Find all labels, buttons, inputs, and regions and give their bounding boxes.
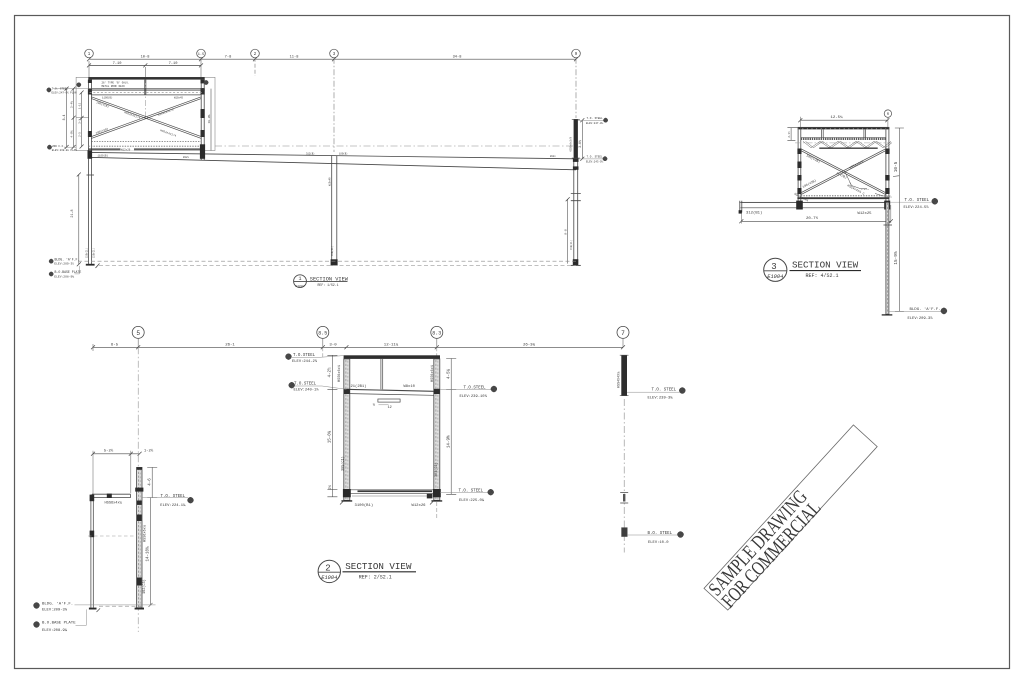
svg-text:14-9⅝: 14-9⅝ — [447, 435, 451, 448]
svg-text:2ND F.F.: 2ND F.F. — [52, 145, 65, 148]
svg-text:ELEV:225-0¾: ELEV:225-0¾ — [459, 498, 485, 503]
svg-text:HSS6x6x¼: HSS6x6x¼ — [143, 524, 148, 542]
svg-text:11-8: 11-8 — [290, 56, 299, 60]
svg-text:3-6¾: 3-6¾ — [578, 140, 582, 148]
svg-text:150(C1): 150(C1) — [331, 245, 334, 256]
svg-text:T.O. STEEL: T.O. STEEL — [587, 117, 604, 120]
svg-text:ELEV:209-3⅞: ELEV:209-3⅞ — [42, 609, 68, 613]
svg-text:HSS6x4x¼: HSS6x4x¼ — [105, 500, 123, 505]
svg-text:4-6: 4-6 — [148, 478, 152, 486]
svg-text:34-8: 34-8 — [453, 56, 462, 60]
svg-text:8.5: 8.5 — [318, 330, 327, 336]
svg-text:8-4: 8-4 — [62, 115, 66, 121]
svg-text:HSS6x6x¼: HSS6x6x¼ — [337, 364, 342, 382]
svg-text:303(C1): 303(C1) — [434, 462, 439, 477]
svg-text:1100(B): 1100(B) — [102, 96, 113, 99]
svg-text:W10x49: W10x49 — [329, 177, 332, 186]
svg-text:150(C1): 150(C1) — [85, 247, 88, 258]
svg-text:W8x10: W8x10 — [404, 385, 416, 389]
svg-text:10-5: 10-5 — [894, 161, 899, 172]
svg-text:ELEV:209-3⅞: ELEV:209-3⅞ — [908, 317, 934, 321]
svg-text:10-8: 10-8 — [141, 56, 150, 60]
svg-text:ELEV:243-5⅛: ELEV:243-5⅛ — [586, 159, 604, 163]
svg-text:150(C1): 150(C1) — [92, 247, 95, 258]
svg-text:312(B1): 312(B1) — [746, 210, 762, 215]
svg-text:HSS4X4X¼: HSS4X4X¼ — [617, 371, 622, 388]
svg-text:W12x26: W12x26 — [412, 504, 427, 508]
svg-text:4-2½: 4-2½ — [328, 367, 333, 378]
svg-text:4-5¾: 4-5¾ — [446, 368, 451, 379]
svg-text:15-0¾: 15-0¾ — [328, 430, 333, 443]
svg-text:HSS6x6x3/8: HSS6x6x3/8 — [570, 136, 573, 152]
svg-text:ELEV:239-3¾: ELEV:239-3¾ — [648, 396, 674, 401]
svg-text:312(B): 312(B) — [306, 153, 315, 156]
svg-text:ELEV:247-0⅛: ELEV:247-0⅛ — [586, 121, 604, 125]
svg-text:3-1: 3-1 — [78, 119, 81, 124]
svg-text:21-8: 21-8 — [71, 209, 75, 217]
svg-text:ELEV:239-10⅞: ELEV:239-10⅞ — [460, 395, 488, 399]
svg-text:BLDG. 'A'F.F.: BLDG. 'A'F.F. — [55, 257, 80, 261]
svg-text:ELEV:209-3⅞: ELEV:209-3⅞ — [54, 263, 74, 266]
svg-text:1100(B): 1100(B) — [98, 154, 109, 157]
svg-text:182(C3): 182(C3) — [142, 579, 147, 594]
svg-text:W12x26: W12x26 — [121, 148, 131, 151]
svg-text:7-10: 7-10 — [169, 62, 178, 66]
svg-text:4-8¾: 4-8¾ — [70, 130, 74, 137]
svg-text:E1004: E1004 — [295, 284, 304, 288]
svg-text:E1004: E1004 — [767, 274, 783, 280]
svg-text:T.O. STEEL: T.O. STEEL — [587, 156, 604, 159]
svg-text:W12x25: W12x25 — [858, 212, 873, 216]
svg-text:8-8: 8-8 — [565, 229, 568, 235]
svg-text:ELEV:224-5⅞: ELEV:224-5⅞ — [904, 206, 930, 210]
svg-text:ELEV:10-0: ELEV:10-0 — [648, 541, 669, 545]
svg-text:3-4¾: 3-4¾ — [70, 101, 74, 108]
svg-text:METAL ROOF DECK: METAL ROOF DECK — [102, 85, 126, 88]
svg-text:T.O. STEEL: T.O. STEEL — [905, 199, 930, 203]
svg-text:2-1½: 2-1½ — [787, 131, 791, 138]
svg-text:15-9⅞: 15-9⅞ — [894, 251, 899, 265]
svg-text:ELEV:247-0⅛ PLAN: ELEV:247-0⅛ PLAN — [52, 91, 77, 95]
svg-text:12: 12 — [388, 406, 392, 410]
svg-text:10-8⅛: 10-8⅛ — [207, 114, 211, 123]
svg-text:26' TYPE 'B' GALV.: 26' TYPE 'B' GALV. — [102, 80, 130, 84]
svg-text:14-10¾: 14-10¾ — [146, 546, 151, 562]
svg-text:ELEV:240-1⅞: ELEV:240-1⅞ — [294, 389, 320, 393]
svg-text:2½: 2½ — [328, 485, 333, 490]
svg-text:5: 5 — [136, 330, 140, 337]
svg-text:26-1: 26-1 — [225, 343, 235, 347]
svg-text:B.O.BASE PLATE: B.O.BASE PLATE — [42, 622, 76, 626]
svg-text:1: 1 — [298, 276, 301, 282]
svg-text:12-11¼: 12-11¼ — [384, 342, 399, 347]
svg-text:⅛ 3-12: ⅛ 3-12 — [861, 188, 870, 191]
svg-text:1-11: 1-11 — [78, 102, 81, 109]
svg-text:1.5: 1.5 — [198, 53, 204, 57]
svg-text:100(B): 100(B) — [339, 153, 348, 156]
svg-text:HSS6x6x¼: HSS6x6x¼ — [430, 364, 435, 382]
svg-text:26-3¾: 26-3¾ — [523, 342, 536, 347]
svg-text:8.3: 8.3 — [432, 330, 441, 336]
svg-text:REF: 2/S2.1: REF: 2/S2.1 — [359, 574, 392, 580]
svg-text:2: 2 — [325, 563, 330, 573]
svg-text:2-5: 2-5 — [78, 132, 81, 137]
svg-text:BLDG. 'A'F.F.: BLDG. 'A'F.F. — [42, 602, 73, 607]
svg-text:3100(B1): 3100(B1) — [355, 503, 374, 508]
svg-text:ELEV:224-1¾: ELEV:224-1¾ — [160, 503, 186, 508]
svg-text:20-7½: 20-7½ — [806, 216, 819, 221]
svg-text:B.O. STEEL: B.O. STEEL — [648, 532, 673, 536]
svg-text:REF: 4/S2.1: REF: 4/S2.1 — [806, 273, 839, 279]
svg-text:E1004: E1004 — [321, 575, 337, 581]
svg-text:305(C1): 305(C1) — [340, 456, 345, 471]
svg-text:ELEV:208-9¾: ELEV:208-9¾ — [42, 628, 68, 633]
svg-text:7-8: 7-8 — [225, 56, 232, 60]
svg-text:B.O.BASE PLATE: B.O.BASE PLATE — [55, 270, 82, 274]
svg-text:5-2½: 5-2½ — [104, 449, 114, 454]
svg-text:SECTION VIEW: SECTION VIEW — [792, 260, 859, 271]
svg-text:150(C1): 150(C1) — [570, 239, 573, 250]
svg-text:7: 7 — [621, 330, 625, 337]
svg-text:21(2B1): 21(2B1) — [351, 384, 367, 389]
svg-text:1-2½: 1-2½ — [144, 449, 154, 454]
svg-text:12-5¼: 12-5¼ — [830, 115, 843, 120]
svg-text:SECTION VIEW: SECTION VIEW — [310, 276, 349, 282]
svg-text:SECTION VIEW: SECTION VIEW — [345, 561, 412, 572]
svg-text:3: 3 — [771, 262, 776, 272]
svg-text:W12x: W12x — [183, 156, 190, 159]
svg-text:ELEV:244-2⅞: ELEV:244-2⅞ — [292, 360, 318, 364]
svg-text:W12x: W12x — [550, 155, 556, 158]
svg-text:3-0: 3-0 — [329, 343, 337, 347]
svg-text:T.O. STEEL: T.O. STEEL — [161, 495, 186, 499]
svg-text:W10x45: W10x45 — [174, 96, 184, 99]
svg-text:6-5: 6-5 — [111, 343, 119, 347]
svg-text:ELEV:208-9¾: ELEV:208-9¾ — [54, 274, 74, 278]
svg-text:7-10: 7-10 — [113, 62, 122, 66]
svg-text:REF: 1/S2.1: REF: 1/S2.1 — [318, 283, 339, 287]
svg-text:T.O. STEEL: T.O. STEEL — [459, 489, 484, 493]
